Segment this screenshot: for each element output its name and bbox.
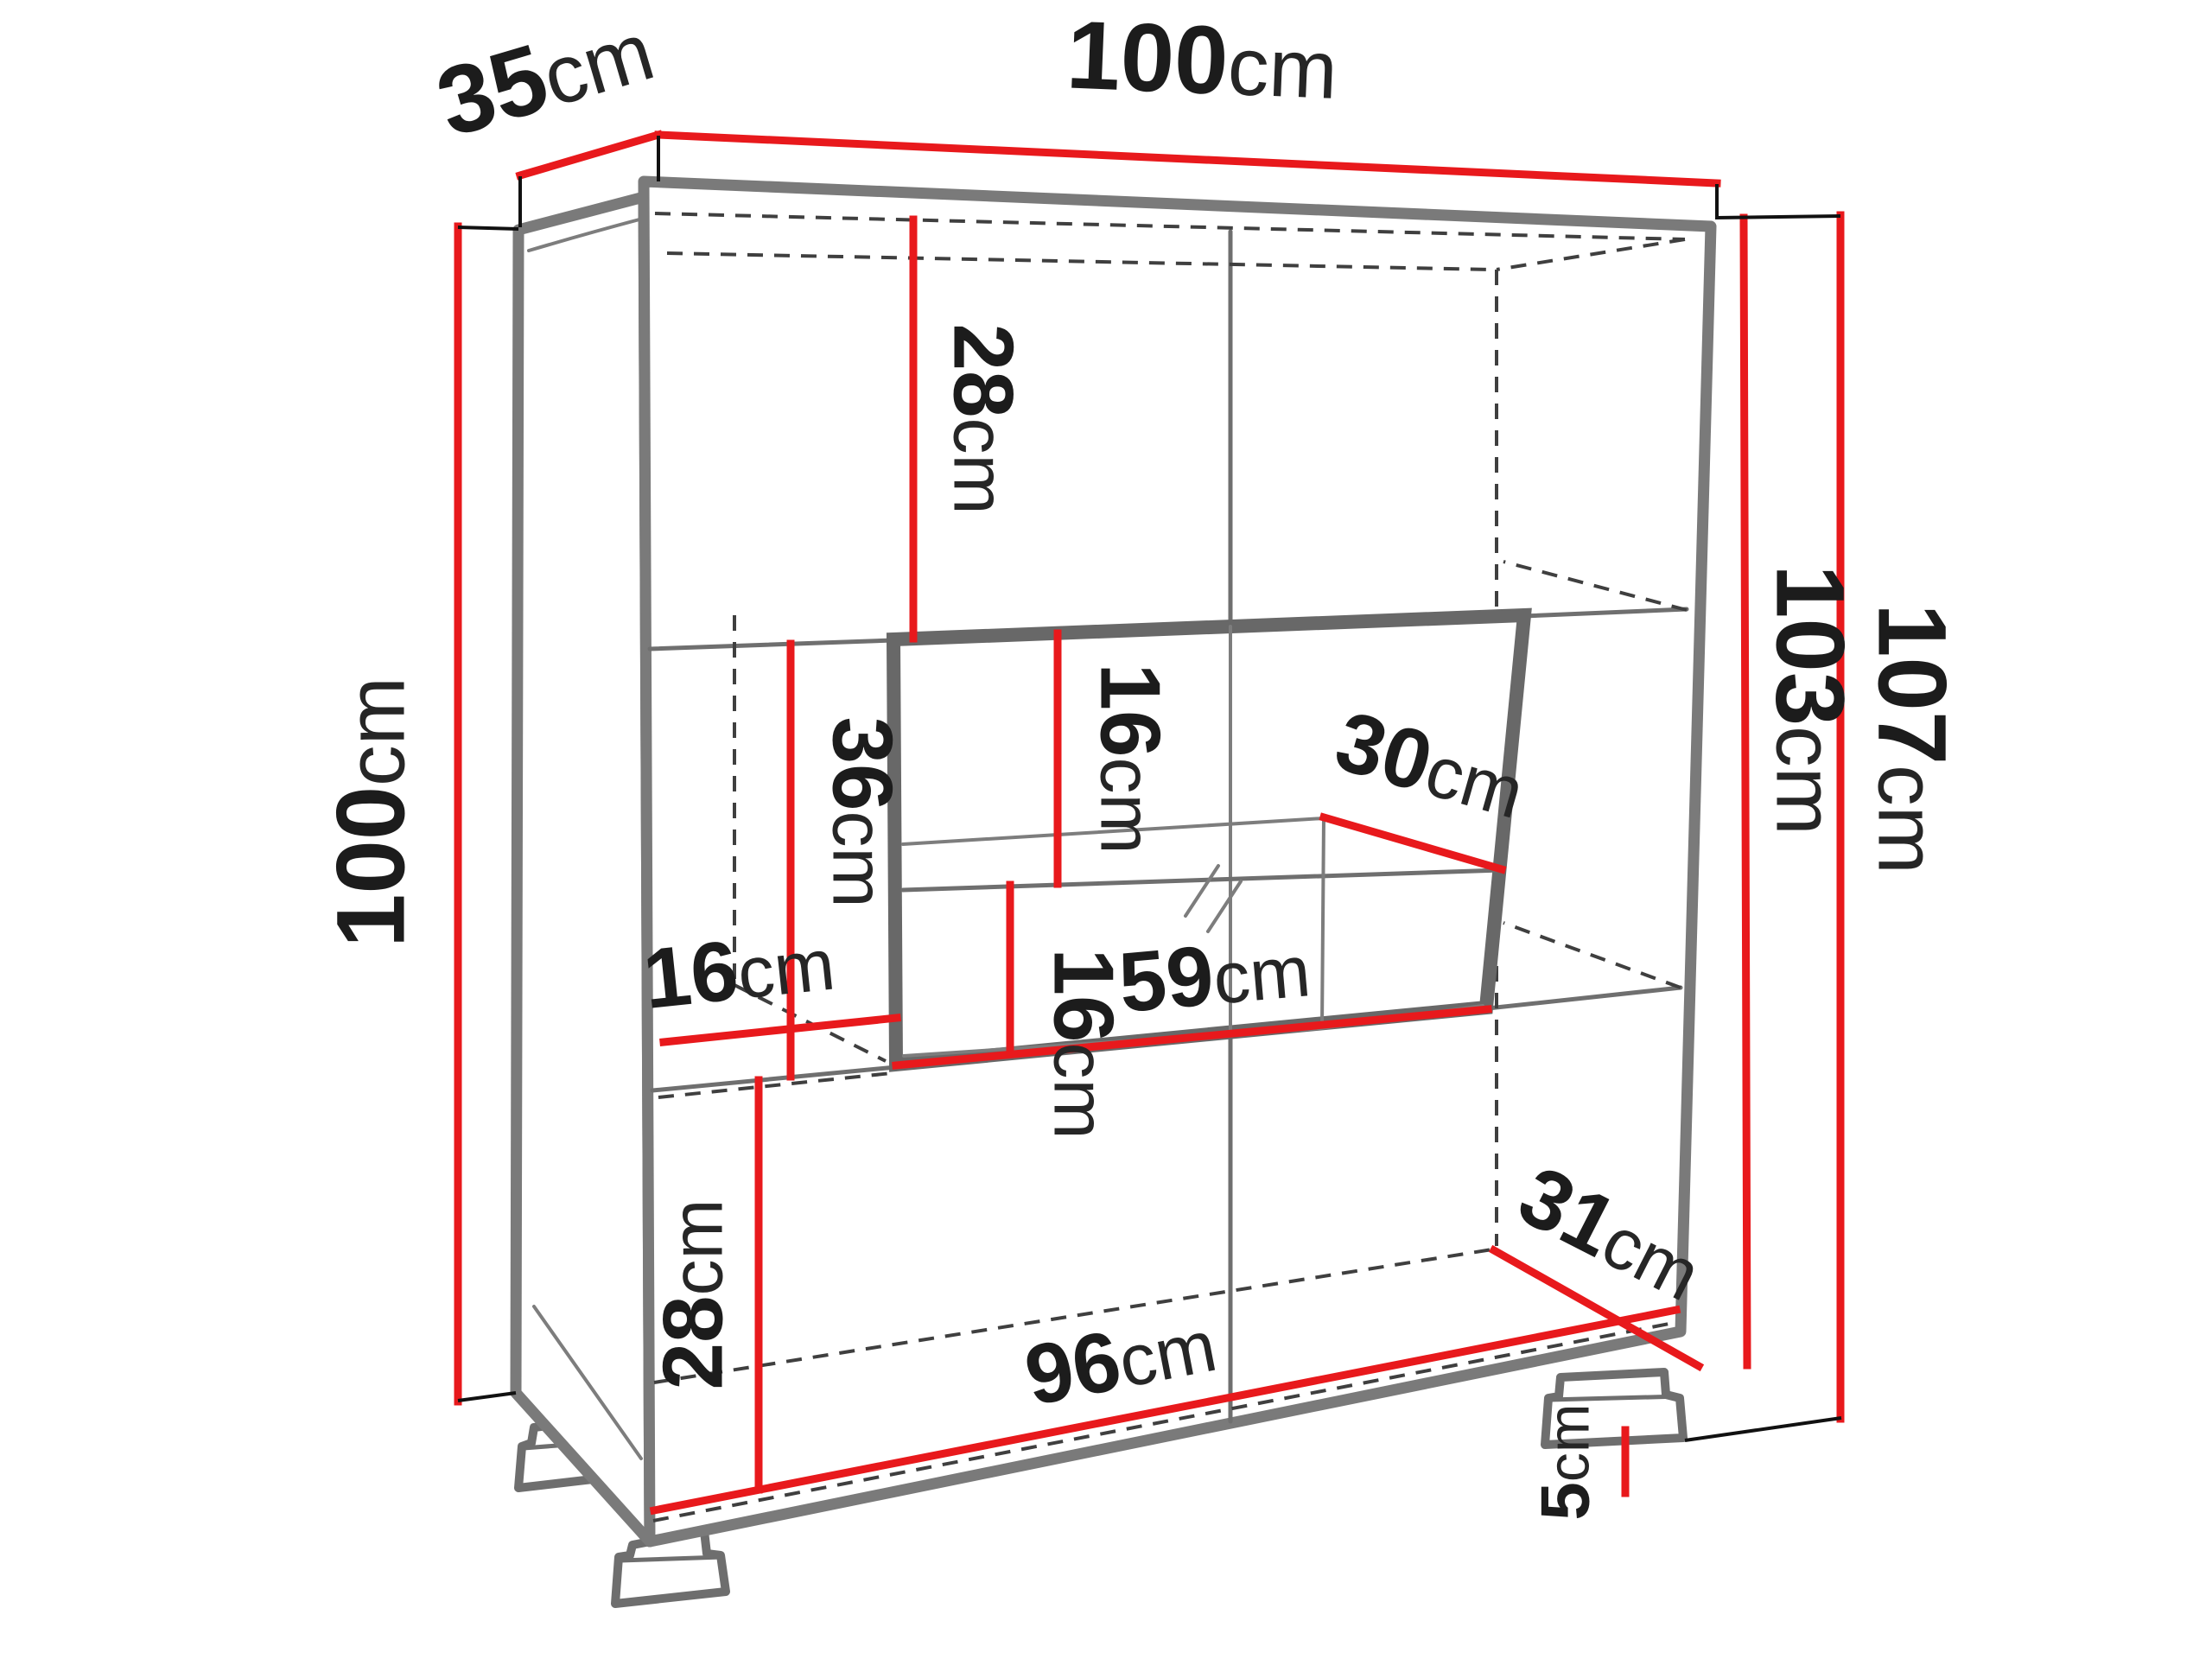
dim-label-width-top: 100cm	[1065, 0, 1339, 118]
dim-label-display-lower: 16cm	[1036, 949, 1131, 1140]
ext-right-top	[1717, 184, 1840, 218]
dim-label-top-section: 28cm	[936, 324, 1031, 515]
ext-left-top	[458, 227, 518, 229]
dim-label-height-inner-right: 103cm	[1756, 564, 1864, 836]
diagram-canvas: 35cm 100cm 100cm 103cm 107cm 28cm 16cm 3…	[0, 0, 2212, 1659]
dim-label-bottom-section: 28cm	[645, 1199, 741, 1390]
dim-line-height-inner-right	[1744, 218, 1747, 1365]
cabinet-side-panel	[516, 197, 650, 1541]
furniture-dimension-diagram: 35cm 100cm 100cm 103cm 107cm 28cm 16cm 3…	[0, 0, 2212, 1659]
dim-line-width-top	[658, 135, 1717, 183]
dim-label-height-total-right: 107cm	[1858, 603, 1966, 874]
dim-label-foot-height: 5cm	[1527, 1403, 1604, 1520]
dim-label-depth-top: 35cm	[425, 0, 664, 157]
ext-right-bottom	[1685, 1418, 1841, 1440]
dim-line-depth-top	[520, 135, 658, 175]
interior-back-right-vertical	[1322, 819, 1324, 1027]
ext-left-bottom	[458, 1393, 516, 1401]
dim-label-middle-left: 36cm	[815, 717, 910, 908]
dim-label-height-left: 100cm	[317, 677, 425, 948]
dim-label-display-upper: 16cm	[1083, 664, 1178, 855]
